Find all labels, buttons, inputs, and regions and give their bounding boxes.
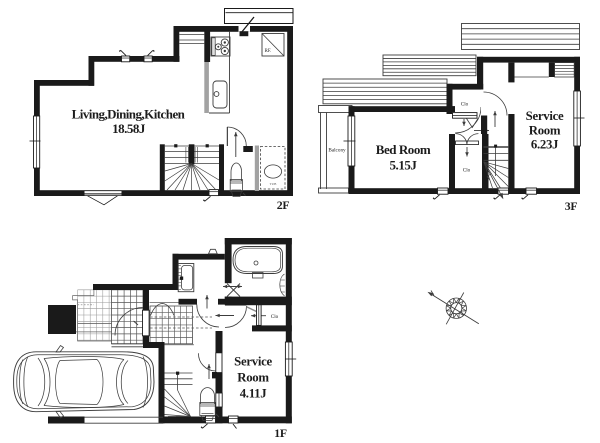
svg-text:Service: Service bbox=[234, 355, 272, 369]
svg-text:Clo: Clo bbox=[271, 314, 279, 320]
svg-text:3F: 3F bbox=[565, 199, 578, 213]
svg-text:Living,Dining,Kitchen: Living,Dining,Kitchen bbox=[72, 107, 186, 122]
svg-text:1F: 1F bbox=[274, 426, 287, 440]
svg-text:RF.: RF. bbox=[265, 49, 272, 54]
svg-text:18.58J: 18.58J bbox=[112, 121, 146, 136]
svg-text:Bed Room: Bed Room bbox=[376, 142, 431, 157]
svg-text:Room: Room bbox=[237, 371, 269, 385]
svg-text:6.23J: 6.23J bbox=[531, 138, 559, 152]
svg-text:Service: Service bbox=[526, 109, 564, 123]
svg-text:Clo: Clo bbox=[461, 102, 469, 108]
svg-text:Balcony: Balcony bbox=[328, 148, 346, 154]
svg-text:TUB: TUB bbox=[270, 182, 278, 186]
svg-text:Clo: Clo bbox=[463, 168, 471, 174]
svg-text:2F: 2F bbox=[277, 198, 290, 212]
svg-text:5.15J: 5.15J bbox=[389, 158, 417, 173]
svg-text:Room: Room bbox=[529, 124, 561, 138]
svg-text:4.11J: 4.11J bbox=[240, 387, 267, 401]
